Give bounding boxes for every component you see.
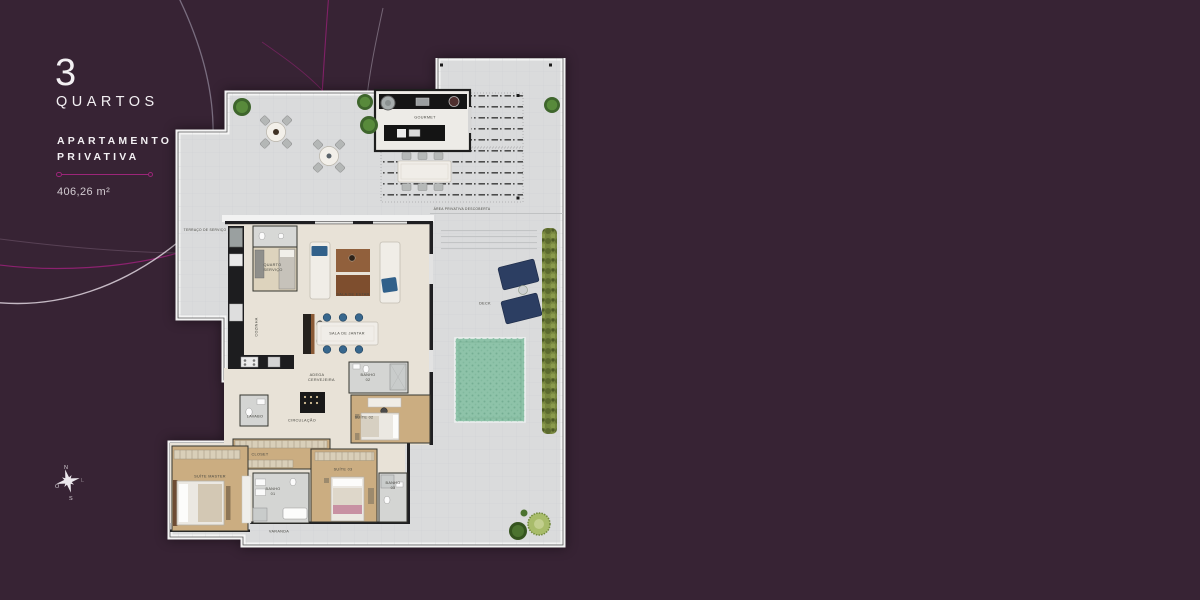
wardrobe-icon bbox=[174, 450, 240, 459]
wine-bar bbox=[300, 392, 325, 413]
sink-icon bbox=[256, 489, 266, 496]
grill-icon bbox=[449, 97, 459, 107]
divider-line bbox=[62, 174, 148, 175]
suite-master-room bbox=[172, 446, 248, 531]
unit-type-line1: APARTAMENTO bbox=[57, 135, 172, 147]
divider-right-dot bbox=[148, 172, 154, 178]
wardrobe-icon bbox=[235, 441, 327, 449]
compass-star-icon bbox=[53, 466, 82, 495]
room-label-banho-02: BANHO 02 bbox=[361, 373, 376, 383]
unit-area: 406,26 m² bbox=[57, 186, 110, 198]
shower-icon bbox=[253, 508, 267, 521]
compass-west-label: O bbox=[55, 484, 60, 490]
toilet-icon bbox=[259, 232, 265, 240]
stove-icon bbox=[241, 357, 258, 367]
compass-south-label: S bbox=[69, 496, 73, 502]
room-label-suite-master: SUÍTE MASTER bbox=[194, 475, 226, 480]
sink-icon bbox=[416, 98, 429, 106]
room-label-area-privativa: ÁREA PRIVATIVA DESCOBERTA bbox=[434, 207, 491, 211]
room-label-sala-de-jantar: SALA DE JANTAR bbox=[329, 332, 365, 337]
room-label-terraco-servico: TERRAÇO DE SERVIÇO bbox=[184, 228, 227, 232]
compass-east-label: L bbox=[81, 478, 84, 484]
room-label-closet: CLOSET bbox=[252, 453, 269, 458]
wardrobe-icon bbox=[315, 452, 374, 461]
room-label-sala-de-estar: SALA DE ESTAR bbox=[336, 293, 369, 298]
bedrooms-number: 3 bbox=[55, 52, 77, 95]
armchair-icon bbox=[381, 277, 398, 293]
room-label-lavabo: LAVABO bbox=[247, 415, 263, 420]
outdoor-dining-set bbox=[398, 153, 451, 191]
accent-divider bbox=[56, 172, 153, 177]
desk-icon bbox=[368, 398, 401, 407]
sink-icon bbox=[256, 479, 266, 486]
room-label-circulacao: CIRCULAÇÃO bbox=[288, 419, 316, 424]
powder-room bbox=[240, 395, 268, 426]
arc-magenta-lower bbox=[0, 253, 178, 268]
room-label-quarto-servico: QUARTO SERVIÇO bbox=[264, 263, 279, 273]
gourmet-kitchen bbox=[375, 90, 472, 151]
toilet-icon bbox=[290, 478, 296, 486]
bathroom-02 bbox=[349, 362, 408, 393]
room-label-suite-02: SUÍTE 02 bbox=[355, 416, 374, 421]
room-label-deck: DECK bbox=[479, 302, 491, 307]
sink-icon bbox=[257, 399, 265, 405]
room-label-gourmet: GOURMET bbox=[414, 116, 436, 121]
arc-faint-lower bbox=[0, 238, 178, 253]
toilet-icon bbox=[384, 496, 390, 504]
hedge bbox=[542, 228, 557, 434]
service-quarter bbox=[253, 226, 297, 291]
side-table-icon bbox=[519, 286, 528, 295]
fridge-icon bbox=[230, 228, 243, 247]
bathtub-icon bbox=[283, 508, 307, 519]
floor-plan: TERRAÇO DE SERVIÇO GOURMET ÁREA PRIVATIV… bbox=[165, 58, 570, 548]
bedrooms-label: QUARTOS bbox=[56, 94, 159, 110]
toilet-icon bbox=[363, 365, 369, 373]
room-label-banho-03: BANHO 03 bbox=[386, 481, 401, 491]
room-label-varanda: VARANDA bbox=[269, 530, 289, 535]
sink-icon bbox=[278, 233, 284, 239]
compass-north-label: N bbox=[64, 465, 68, 471]
compass: N L S O bbox=[38, 451, 102, 515]
unit-type-line2: PRIVATIVA bbox=[57, 151, 139, 163]
room-label-adega: ADEGA CERVEJEIRA bbox=[308, 373, 326, 383]
room-label-cozinha: COZINHA bbox=[255, 317, 260, 336]
sofa-icon bbox=[380, 242, 400, 303]
suite-03-room bbox=[311, 449, 377, 522]
room-label-banho-01: BANHO 01 bbox=[266, 487, 281, 497]
room-label-suite-03: SUÍTE 03 bbox=[334, 468, 353, 473]
